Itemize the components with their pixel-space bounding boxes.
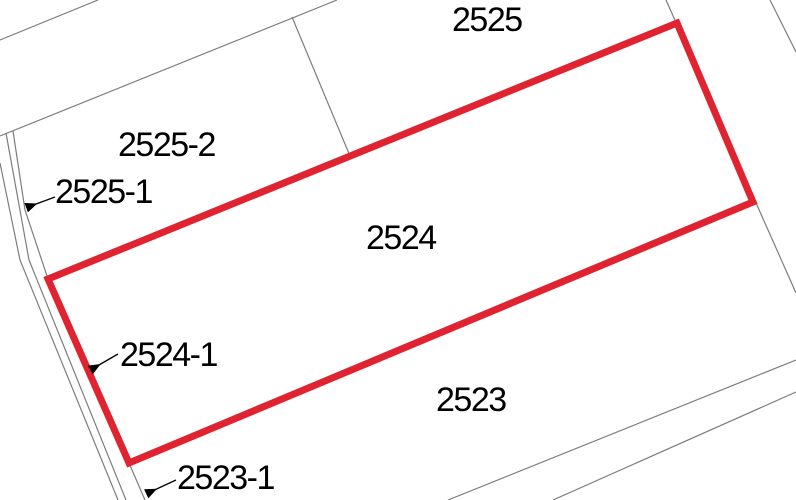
parcel-label-2525-2: 2525-2 bbox=[118, 128, 215, 162]
parcel-label-2524: 2524 bbox=[366, 221, 436, 255]
parcel-label-2523: 2523 bbox=[436, 383, 506, 417]
boundary-line-topleft-corner bbox=[0, 0, 98, 40]
boundary-line-2525-divider bbox=[292, 17, 350, 156]
boundary-line-road-lower bbox=[553, 392, 796, 500]
parcel-label-2525: 2525 bbox=[452, 3, 522, 37]
boundary-line-west-strip-outer bbox=[0, 163, 118, 500]
leader-arrow-2523-1 bbox=[148, 480, 176, 493]
leader-arrow-2525-1 bbox=[28, 197, 55, 207]
parcel-label-2524-1: 2524-1 bbox=[120, 338, 217, 372]
cadastral-map-canvas: 2525 2525-2 2525-1 2524 2524-1 2523 2523… bbox=[0, 0, 796, 500]
leader-arrow-2524-1 bbox=[92, 354, 118, 369]
parcel-label-2525-1: 2525-1 bbox=[55, 175, 152, 209]
parcel-label-2523-1: 2523-1 bbox=[177, 461, 274, 495]
boundary-line-upper-diagonal bbox=[0, 0, 337, 136]
boundary-line-topright-corner bbox=[770, 0, 796, 52]
